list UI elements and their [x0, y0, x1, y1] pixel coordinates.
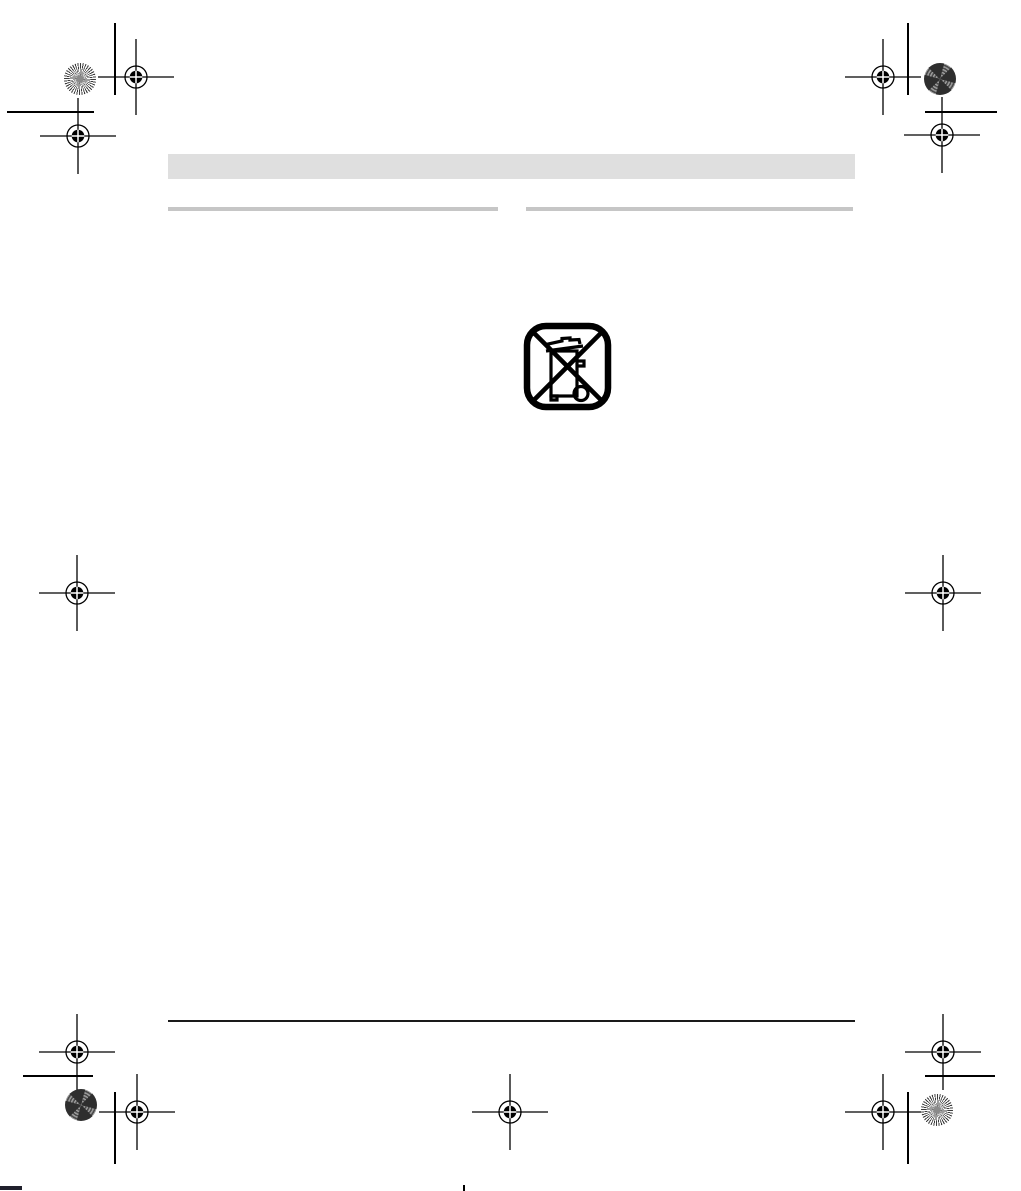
- left-column-heading-rule: [168, 207, 498, 211]
- sunburst-star-target-icon: [921, 1094, 953, 1126]
- cross-patch-star-target-icon: [924, 63, 956, 95]
- sunburst-star-target-icon: [64, 63, 96, 95]
- registration-mark-icon: [39, 555, 115, 631]
- weee-crossed-out-wheelie-bin-icon: [523, 322, 612, 411]
- footer-rule: [168, 1020, 855, 1022]
- registration-mark-icon: [904, 97, 980, 173]
- right-column-heading-rule: [526, 207, 853, 211]
- crop-line-bottom-center-tick: [463, 1185, 465, 1191]
- registration-mark-icon: [905, 555, 981, 631]
- registration-mark-icon: [472, 1074, 548, 1150]
- cross-patch-star-target-icon: [65, 1089, 97, 1121]
- registration-mark-icon: [845, 1074, 921, 1150]
- registration-mark-icon: [40, 98, 116, 174]
- crop-line-top-right-vertical: [907, 23, 909, 95]
- registration-mark-icon: [99, 1074, 175, 1150]
- crop-line-bottom-right-horizontal: [925, 1075, 995, 1077]
- header-bar: [168, 154, 855, 179]
- print-proof-page: [0, 0, 1021, 1191]
- crop-line-bottom-left-horizontal: [23, 1075, 93, 1077]
- clipped-text-fragment: [0, 1186, 22, 1190]
